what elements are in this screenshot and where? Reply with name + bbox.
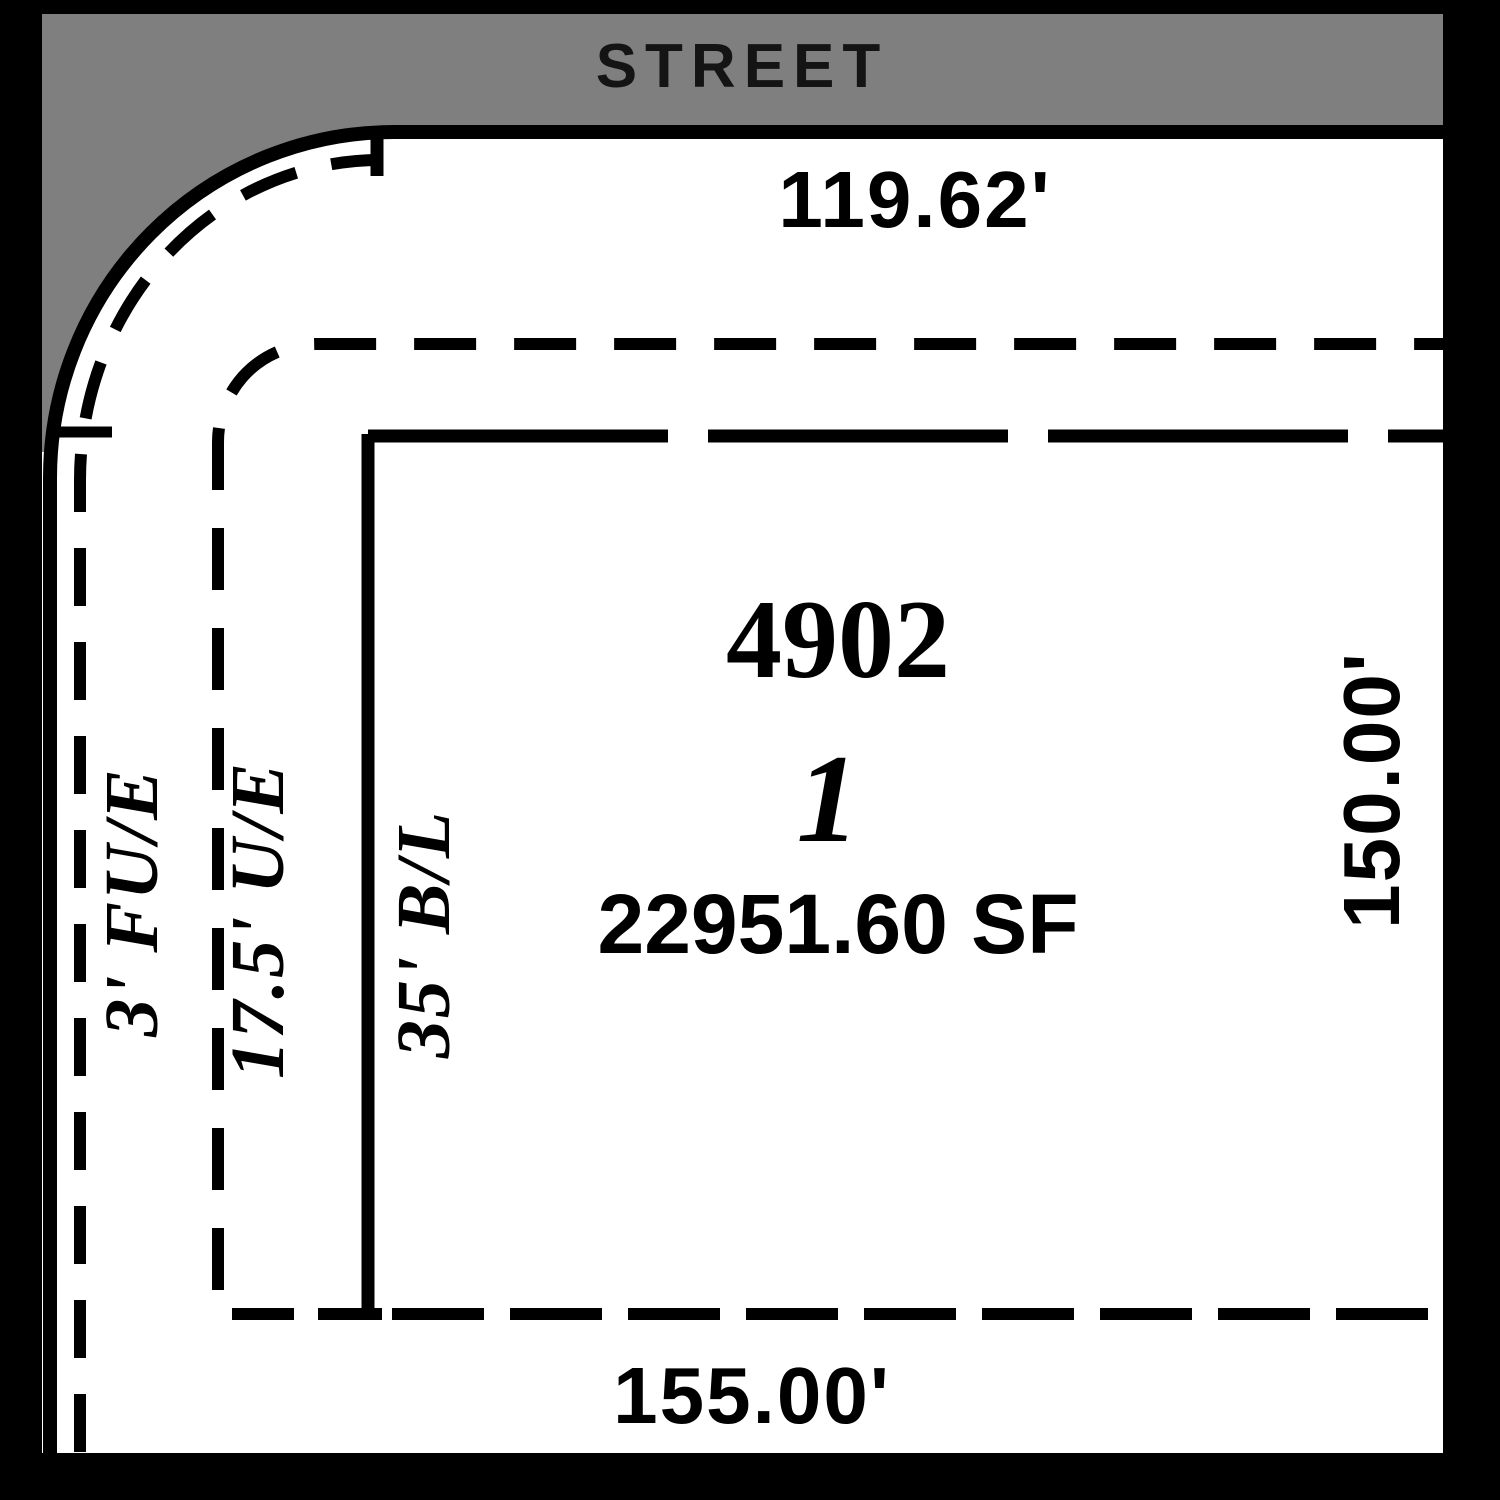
franchise-utility-easement-label: 3' FU/E <box>94 767 170 1037</box>
front-dimension-label: 119.62' <box>778 160 1051 240</box>
frame-right <box>1443 0 1500 1500</box>
plat-drawing: STREET 119.62' 4902 1 22951.60 SF 150.00… <box>0 0 1500 1500</box>
frame-bottom <box>0 1453 1500 1500</box>
street-label: STREET <box>596 36 889 98</box>
lot-area-label: 22951.60 SF <box>597 882 1078 966</box>
rear-dimension-label: 155.00' <box>613 1356 891 1436</box>
frame-left <box>0 0 42 1500</box>
utility-easement-label: 17.5' U/E <box>220 761 296 1079</box>
right-dimension-label: 150.00' <box>1332 651 1412 929</box>
house-number-label: 4902 <box>726 584 950 696</box>
lot-linework <box>0 0 1500 1500</box>
building-line-label: 35' B/L <box>386 810 462 1058</box>
lot-number-label: 1 <box>797 737 860 863</box>
frame-top <box>0 0 1500 14</box>
